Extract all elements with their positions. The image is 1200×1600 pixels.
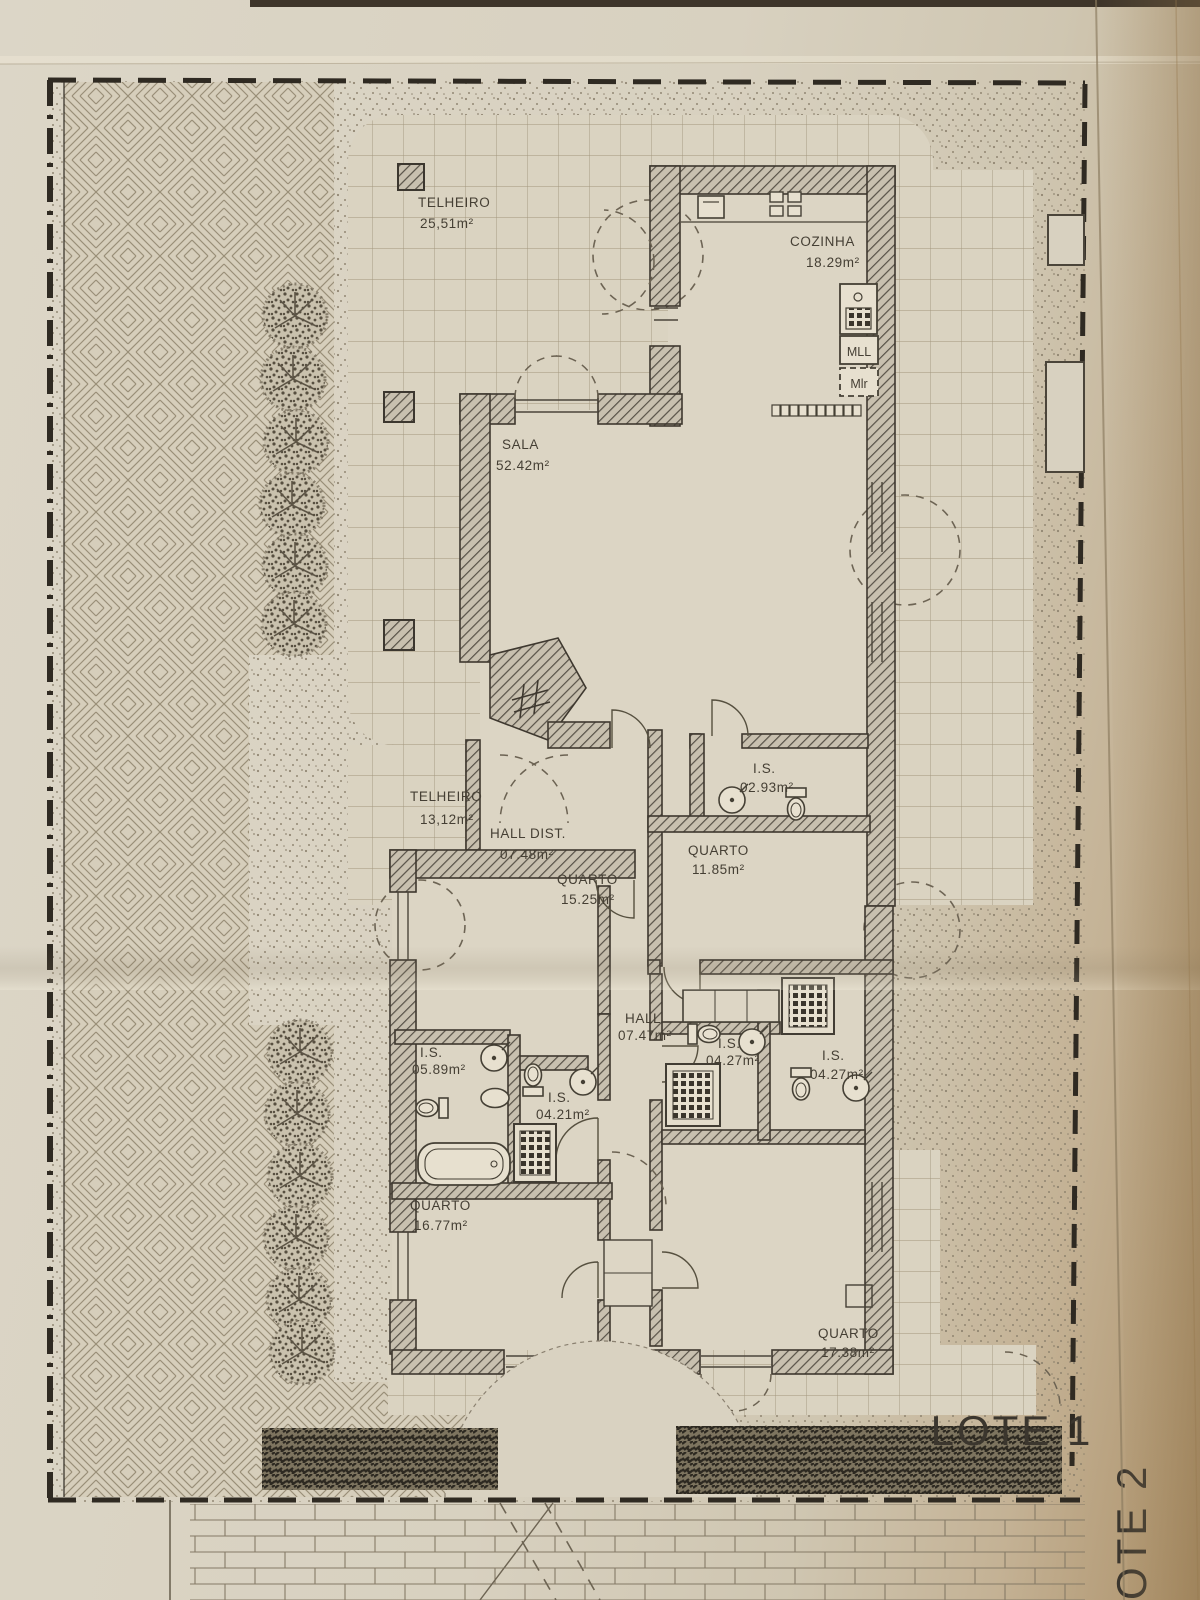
dishwasher-label: MLL — [847, 345, 871, 359]
toilet-icon — [791, 1068, 811, 1100]
svg-text:25,51m²: 25,51m² — [420, 216, 474, 231]
tree-icon — [264, 1206, 328, 1270]
tree-icon — [261, 347, 325, 411]
svg-text:04.27m²: 04.27m² — [706, 1053, 760, 1068]
toilet-icon — [688, 1024, 720, 1044]
svg-text:07.48m²: 07.48m² — [500, 847, 554, 862]
svg-text:I.S.: I.S. — [548, 1090, 571, 1105]
svg-text:04.27m²: 04.27m² — [810, 1067, 864, 1082]
svg-text:HALL DIST.: HALL DIST. — [490, 826, 566, 841]
svg-text:COZINHA: COZINHA — [790, 234, 855, 249]
tree-icon — [268, 1144, 332, 1208]
bidet-icon — [481, 1089, 509, 1108]
shower-icon — [666, 1064, 720, 1126]
svg-text:16.77m²: 16.77m² — [414, 1218, 468, 1233]
svg-text:07.47m²: 07.47m² — [618, 1028, 672, 1043]
site-plan-drawing: TELHEIRO 25,51m² COZINHA 18.29m² SALA 52… — [0, 0, 1200, 1600]
svg-text:TELHEIRO: TELHEIRO — [418, 195, 490, 210]
svg-text:18.29m²: 18.29m² — [806, 255, 860, 270]
sink-icon — [840, 284, 877, 334]
tree-icon — [262, 592, 326, 656]
svg-text:13,12m²: 13,12m² — [420, 812, 474, 827]
svg-text:11.85m²: 11.85m² — [692, 862, 745, 877]
svg-text:HALL: HALL — [625, 1011, 661, 1026]
corridor-closet — [604, 1240, 652, 1306]
radiator-row — [772, 405, 861, 416]
svg-text:TELHEIRO: TELHEIRO — [410, 789, 482, 804]
svg-text:QUARTO: QUARTO — [557, 872, 618, 887]
svg-text:05.89m²: 05.89m² — [412, 1062, 466, 1077]
svg-text:I.S.: I.S. — [822, 1048, 845, 1063]
closet — [683, 990, 779, 1022]
svg-text:QUARTO: QUARTO — [688, 843, 749, 858]
hedge — [262, 1428, 498, 1490]
tree-icon — [268, 1020, 332, 1084]
floor-plan-photo: TELHEIRO 25,51m² COZINHA 18.29m² SALA 52… — [0, 0, 1200, 1600]
washer-label: Mlr — [850, 377, 867, 391]
svg-text:QUARTO: QUARTO — [410, 1198, 471, 1213]
svg-text:17.38m²: 17.38m² — [821, 1345, 875, 1360]
bathtub-icon — [418, 1143, 510, 1185]
svg-text:I.S.: I.S. — [753, 761, 776, 776]
svg-text:I.S.: I.S. — [420, 1045, 443, 1060]
svg-text:I.S.: I.S. — [718, 1036, 741, 1051]
svg-text:SALA: SALA — [502, 437, 539, 452]
svg-text:02.93m²: 02.93m² — [740, 780, 794, 795]
tree-icon — [264, 410, 328, 474]
tree-icon — [265, 1082, 329, 1146]
toilet-icon — [416, 1098, 448, 1118]
tree-icon — [270, 1320, 334, 1384]
oven-icon — [698, 196, 724, 218]
toilet-icon — [523, 1064, 543, 1096]
shower-icon — [514, 1124, 556, 1182]
svg-text:15.25m²: 15.25m² — [561, 892, 615, 907]
svg-text:04.21m²: 04.21m² — [536, 1107, 590, 1122]
svg-text:QUARTO: QUARTO — [818, 1326, 879, 1341]
svg-text:52.42m²: 52.42m² — [496, 458, 550, 473]
sidewalk — [170, 1500, 1085, 1600]
tree-icon — [263, 534, 327, 598]
tree-icon — [263, 284, 327, 348]
lot1-label: LOTE 1 — [931, 1407, 1094, 1454]
tree-icon — [260, 473, 324, 537]
